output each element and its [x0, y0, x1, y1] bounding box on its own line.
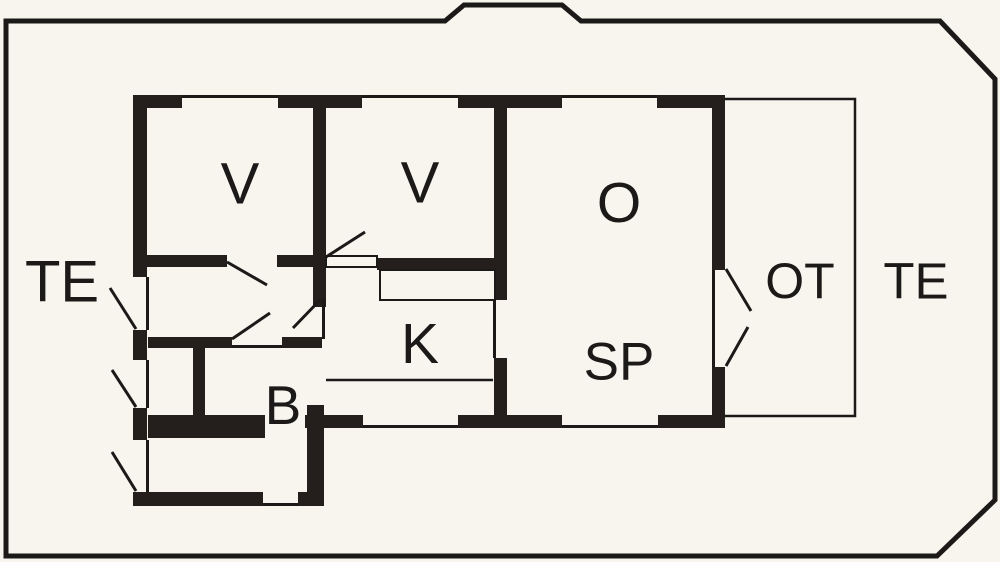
- opening-line: [363, 425, 458, 428]
- wall: [282, 337, 322, 348]
- wall: [458, 415, 562, 428]
- wall: [147, 255, 227, 267]
- opening-line: [182, 95, 278, 98]
- wall: [133, 408, 147, 440]
- wall: [298, 492, 324, 506]
- room-label-o: O: [597, 171, 641, 235]
- room-label-b: B: [265, 374, 302, 436]
- room-label-te-left: TE: [25, 250, 99, 315]
- floor-plan: TEVVOKSPBOTTE: [0, 0, 1000, 562]
- wall: [494, 358, 507, 415]
- room-label-ot: OT: [765, 253, 834, 309]
- opening-line: [146, 440, 149, 492]
- wall: [712, 95, 725, 270]
- wall: [133, 330, 147, 360]
- room-label-te-right: TE: [883, 253, 948, 310]
- opening-line: [562, 95, 657, 98]
- room-label-v2: V: [401, 151, 440, 216]
- wall: [148, 415, 265, 438]
- wall: [148, 337, 232, 348]
- opening-line: [362, 95, 458, 98]
- room-label-v1: V: [221, 152, 260, 217]
- opening-line: [712, 270, 715, 367]
- floor-plan-canvas: TEVVOKSPBOTTE: [0, 0, 1000, 562]
- opening-line: [493, 300, 496, 358]
- wall: [133, 492, 263, 506]
- opening-line: [322, 299, 325, 339]
- opening-line: [146, 277, 149, 330]
- room-label-k: K: [401, 312, 439, 376]
- wall: [313, 95, 326, 307]
- opening-line: [562, 425, 658, 428]
- wall: [307, 405, 324, 493]
- wall: [133, 95, 147, 277]
- wall: [658, 415, 725, 428]
- wall: [277, 255, 313, 267]
- room-label-sp: SP: [584, 333, 655, 392]
- wall: [377, 258, 497, 270]
- opening-line: [232, 345, 282, 348]
- opening-line: [263, 503, 298, 506]
- opening-line: [146, 360, 149, 408]
- wall: [458, 95, 562, 108]
- wall: [193, 340, 205, 438]
